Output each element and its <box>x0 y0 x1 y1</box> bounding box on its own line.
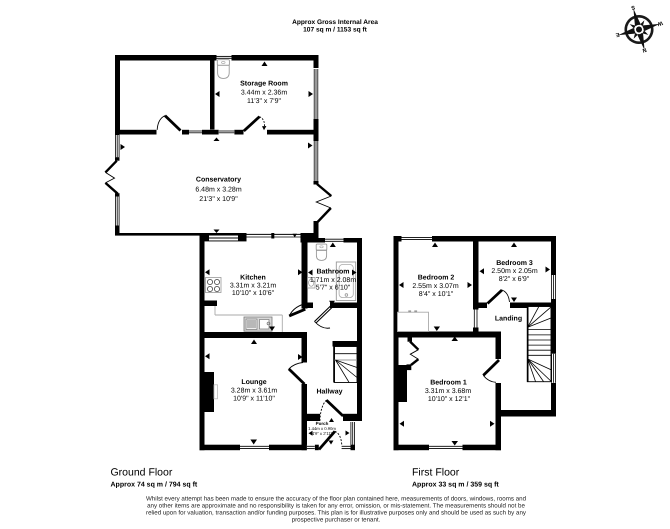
svg-text:107 sq m / 1153 sq ft: 107 sq m / 1153 sq ft <box>303 27 368 34</box>
svg-text:4'9" x 2'11": 4'9" x 2'11" <box>312 431 333 436</box>
svg-text:Whilst every attempt has been: Whilst every attempt has been made to en… <box>146 496 527 503</box>
svg-text:Conservatory: Conservatory <box>196 177 241 184</box>
svg-text:relied upon for valuation, tra: relied upon for valuation, transaction a… <box>146 510 527 517</box>
svg-text:Storage Room: Storage Room <box>240 81 288 88</box>
svg-text:6.48m x 3.28m: 6.48m x 3.28m <box>195 187 241 194</box>
svg-text:Bathroom: Bathroom <box>316 268 349 276</box>
svg-text:prospective purchaser or tenan: prospective purchaser or tenant. <box>292 517 381 524</box>
svg-text:any other items are approximat: any other items are approximate and no r… <box>147 503 525 510</box>
svg-text:10'10" x 10'6": 10'10" x 10'6" <box>232 290 275 297</box>
svg-text:Lounge: Lounge <box>241 379 266 386</box>
svg-text:Bedroom 2: Bedroom 2 <box>418 274 455 282</box>
svg-text:2.55m x 3.07m: 2.55m x 3.07m <box>412 283 458 290</box>
svg-text:First Floor: First Floor <box>412 467 460 479</box>
svg-text:2.50m x 2.05m: 2.50m x 2.05m <box>491 268 537 275</box>
svg-text:8'2" x 6'9": 8'2" x 6'9" <box>499 276 530 283</box>
svg-text:Approx Gross Internal Area: Approx Gross Internal Area <box>292 19 378 26</box>
svg-text:Approx 74 sq m / 794 sq ft: Approx 74 sq m / 794 sq ft <box>111 481 198 489</box>
svg-text:3.28m x 3.61m: 3.28m x 3.61m <box>231 388 277 395</box>
svg-text:3.31m x 3.21m: 3.31m x 3.21m <box>230 283 276 290</box>
svg-text:Ground Floor: Ground Floor <box>111 467 173 479</box>
svg-text:5'7" x 6'10": 5'7" x 6'10" <box>316 285 351 292</box>
svg-text:Landing: Landing <box>495 315 522 323</box>
svg-text:11'3" x 7'9": 11'3" x 7'9" <box>247 98 281 105</box>
svg-text:21'3" x 10'9": 21'3" x 10'9" <box>199 196 238 203</box>
svg-text:3.44m x 2.36m: 3.44m x 2.36m <box>241 90 287 97</box>
svg-text:Bedroom 3: Bedroom 3 <box>496 259 533 267</box>
svg-text:Hallway: Hallway <box>316 387 342 395</box>
svg-text:1.71m x 2.08m: 1.71m x 2.08m <box>310 277 356 284</box>
svg-text:Kitchen: Kitchen <box>240 274 266 282</box>
svg-text:Approx 33 sq m / 359 sq ft: Approx 33 sq m / 359 sq ft <box>412 481 499 489</box>
svg-text:8'4" x 10'1": 8'4" x 10'1" <box>419 291 454 298</box>
svg-text:Bedroom 1: Bedroom 1 <box>430 379 467 387</box>
svg-text:3.31m x 3.68m: 3.31m x 3.68m <box>425 388 471 395</box>
svg-text:10'9" x 11'10": 10'9" x 11'10" <box>233 396 275 403</box>
svg-text:10'10" x 12'1": 10'10" x 12'1" <box>428 396 471 403</box>
